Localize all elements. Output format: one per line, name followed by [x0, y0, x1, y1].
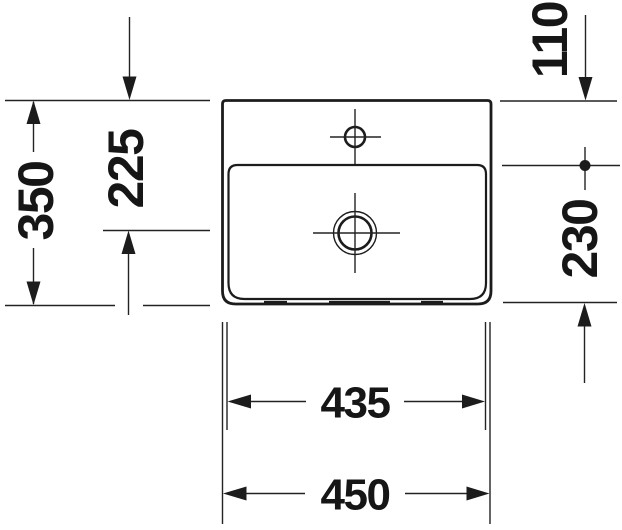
- dimension-label-225: 225: [98, 129, 154, 209]
- technical-drawing-canvas: 350 225 110 230 435: [0, 0, 622, 530]
- arrowhead-right: [462, 395, 485, 409]
- washbasin-dimension-diagram: 350 225 110 230 435: [0, 0, 622, 530]
- dimension-225: 225: [98, 17, 154, 315]
- dimension-label-450: 450: [321, 470, 390, 519]
- dimension-350: 350: [8, 101, 64, 306]
- reference-dot: [580, 160, 591, 171]
- arrowhead-down: [27, 282, 41, 306]
- arrowhead-right: [467, 487, 490, 501]
- arrowhead-left: [223, 487, 247, 501]
- dimension-label-110: 110: [522, 2, 578, 78]
- dimension-label-350: 350: [8, 162, 64, 241]
- dimension-110: 110: [522, 2, 593, 101]
- arrowhead-down: [579, 77, 593, 101]
- basin-inner-bowl-outline: [229, 165, 487, 299]
- arrowhead-up: [578, 303, 592, 327]
- dimension-230: 230: [552, 200, 608, 383]
- arrowhead-up: [122, 231, 136, 255]
- drain-hole: [313, 193, 400, 273]
- arrowhead-left: [228, 395, 252, 409]
- basin-body: [223, 101, 492, 305]
- dimension-label-435: 435: [321, 378, 391, 427]
- dimension-label-230: 230: [552, 200, 608, 279]
- basin-outer-outline: [223, 101, 492, 305]
- dimension-450: 450: [223, 470, 490, 519]
- dimension-435: 435: [228, 378, 486, 427]
- faucet-hole: [330, 109, 381, 164]
- arrowhead-up: [27, 101, 41, 125]
- arrowhead-down: [123, 77, 137, 101]
